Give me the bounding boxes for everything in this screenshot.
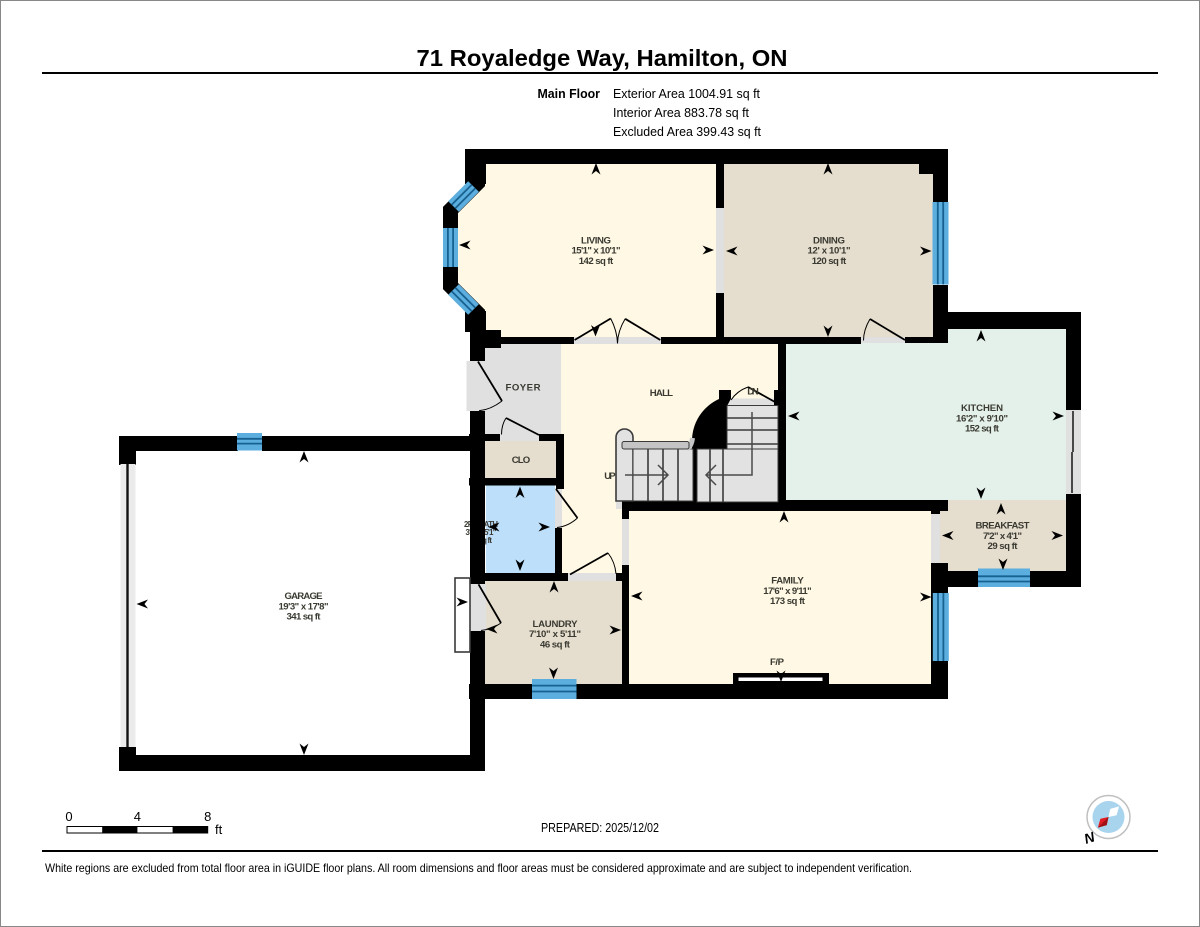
svg-text:120 sq ft: 120 sq ft bbox=[812, 256, 847, 267]
svg-text:173 sq ft: 173 sq ft bbox=[770, 596, 806, 607]
svg-text:8: 8 bbox=[204, 809, 211, 824]
svg-text:White regions are excluded fro: White regions are excluded from total fl… bbox=[45, 861, 912, 875]
svg-text:46 sq ft: 46 sq ft bbox=[540, 639, 571, 650]
svg-text:ft: ft bbox=[215, 822, 223, 837]
svg-text:UP: UP bbox=[604, 471, 616, 482]
svg-text:152 sq ft: 152 sq ft bbox=[965, 424, 1000, 435]
svg-text:142 sq ft: 142 sq ft bbox=[579, 256, 614, 267]
svg-text:FOYER: FOYER bbox=[506, 382, 541, 393]
svg-text:CLO: CLO bbox=[512, 455, 531, 466]
svg-text:341 sq ft: 341 sq ft bbox=[287, 612, 322, 623]
svg-text:Excluded Area 399.43 sq ft: Excluded Area 399.43 sq ft bbox=[613, 124, 761, 139]
svg-text:PREPARED: 2025/12/02: PREPARED: 2025/12/02 bbox=[541, 820, 659, 835]
svg-text:29 sq ft: 29 sq ft bbox=[988, 541, 1019, 552]
svg-text:F/P: F/P bbox=[770, 657, 785, 668]
svg-text:4: 4 bbox=[134, 809, 141, 824]
svg-text:Main Floor: Main Floor bbox=[538, 86, 601, 101]
svg-text:0: 0 bbox=[65, 809, 72, 824]
svg-text:HALL: HALL bbox=[650, 388, 673, 399]
svg-text:Interior Area 883.78 sq ft: Interior Area 883.78 sq ft bbox=[613, 105, 749, 120]
svg-text:DN: DN bbox=[747, 387, 759, 398]
svg-text:71 Royaledge Way, Hamilton, ON: 71 Royaledge Way, Hamilton, ON bbox=[417, 45, 788, 71]
svg-text:Exterior Area 1004.91 sq ft: Exterior Area 1004.91 sq ft bbox=[613, 86, 760, 101]
